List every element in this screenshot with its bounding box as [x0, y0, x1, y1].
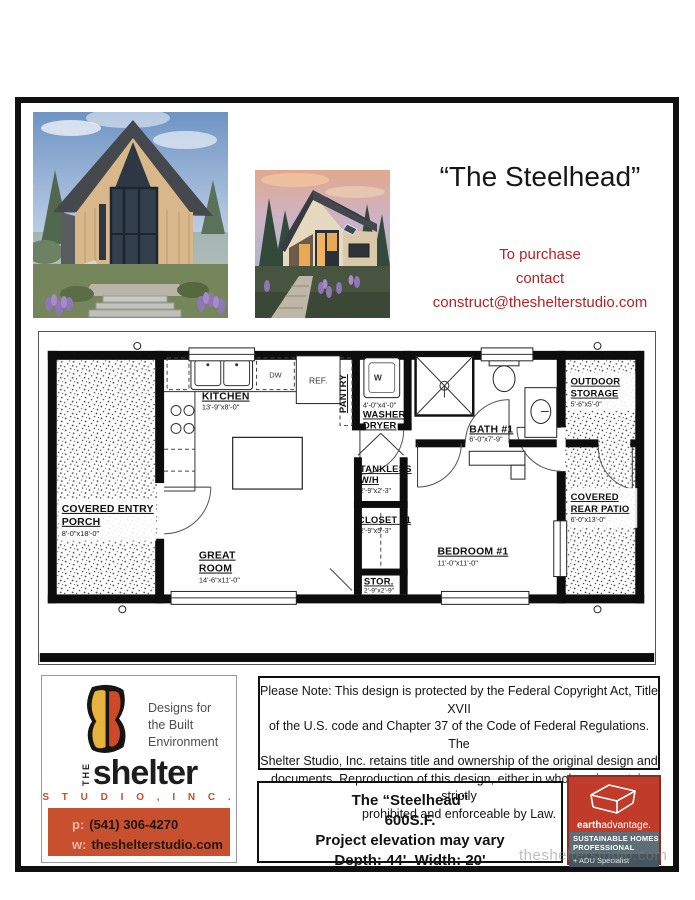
tankless-dims: 2'-9"x2'-3" — [360, 488, 392, 495]
storage-label-1: OUTDOOR — [571, 377, 621, 388]
great-room-label-1: GREAT — [199, 551, 236, 562]
great-room-label-2: ROOM — [199, 564, 232, 575]
closet-dims: 2'-9"x5'-3" — [360, 528, 392, 535]
tagline-line-3: Environment — [148, 734, 218, 751]
project-info-box: The “Steelhead” 600S.F. Project elevatio… — [257, 781, 563, 863]
copyright-line-3: Shelter Studio, Inc. retains title and o… — [260, 753, 658, 771]
web-prefix: w: — [72, 837, 86, 852]
porch-dims: 8'-0"x18'-0" — [62, 529, 100, 538]
copyright-line-1: Please Note: This design is protected by… — [260, 683, 658, 718]
shelter-contact-box: p:(541) 306-4270 w:theshelterstudio.com — [48, 808, 230, 856]
patio-label-2: REAR PATIO — [571, 504, 630, 515]
shelter-logo-mark — [82, 684, 132, 761]
ref-label: REF. — [309, 376, 327, 386]
bath-dims: 6'-0"x7'-9" — [469, 434, 503, 443]
phone-prefix: p: — [72, 817, 84, 832]
purchase-email: construct@theshelterstudio.com — [406, 291, 674, 315]
house-photo-front — [33, 112, 228, 318]
house-rear-render — [255, 170, 390, 318]
dw-label: DW — [269, 371, 281, 380]
project-area: 600S.F. — [259, 811, 561, 831]
patio-dims: 6'-0"x13'-0" — [571, 517, 606, 524]
shelter-studio-card: Designs for the Built Environment THE sh… — [41, 675, 237, 863]
washer-dryer-label-1: WASHER/ — [363, 409, 409, 420]
stor-label: STOR. — [364, 576, 394, 587]
copyright-line-2: of the U.S. code and Chapter 37 of the C… — [260, 718, 658, 753]
floor-plan-drawing: KITCHEN 13'-9"x8'-0" GREAT ROOM 14'-6"x1… — [39, 332, 655, 664]
shelter-phone: p:(541) 306-4270 — [72, 815, 230, 835]
kitchen-label: KITCHEN — [202, 392, 250, 403]
washer-dryer-label-2: DRYER — [363, 420, 397, 431]
watermark-text: theshelterstudio.com — [519, 847, 667, 864]
kitchen-dims: 13'-9"x8'-0" — [202, 403, 240, 412]
bedroom-label: BEDROOM #1 — [437, 547, 508, 558]
porch-label-1: COVERED ENTRY — [62, 504, 154, 515]
tankless-label-1: TANKLESS — [360, 464, 412, 475]
floor-plan: KITCHEN 13'-9"x8'-0" GREAT ROOM 14'-6"x1… — [38, 331, 656, 665]
shelter-website: w:theshelterstudio.com — [72, 835, 230, 855]
earth-advantage-red-panel: earthadvantage. — [569, 777, 659, 832]
page-title: “The Steelhead” — [406, 161, 674, 193]
purchase-line-2: contact — [406, 267, 674, 291]
earth-advantage-cube-icon — [583, 781, 643, 822]
earth-advantage-wordmark: earthadvantage. — [569, 820, 659, 831]
shelter-the: THE — [81, 762, 91, 786]
project-dimensions: Depth: 44' Width: 20' — [259, 851, 561, 871]
web-address: theshelterstudio.com — [91, 837, 222, 852]
tankless-label-2: W/H — [360, 475, 379, 486]
ea-brand-rest: advantage. — [601, 820, 651, 831]
house-front-render — [33, 112, 228, 318]
ea-brand-bold: earth — [577, 820, 601, 831]
project-name: The “Steelhead” — [259, 791, 561, 811]
washer-unit-label: W — [374, 373, 382, 383]
washer-dryer-dims: 4'-0"x4'-0" — [363, 401, 397, 410]
great-room-dims: 14'-6"x11'-0" — [199, 575, 240, 584]
copyright-notice: Please Note: This design is protected by… — [258, 676, 660, 770]
shelter-tagline: Designs for the Built Environment — [148, 700, 218, 751]
pantry-label: PANTRY — [338, 374, 349, 413]
project-elevation-note: Project elevation may vary — [259, 831, 561, 851]
purchase-contact: To purchase contact construct@theshelter… — [406, 243, 674, 315]
tagline-line-1: Designs for — [148, 700, 218, 717]
ea-band-line-1: SUSTAINABLE HOMES — [573, 834, 659, 843]
phone-number: (541) 306-4270 — [89, 817, 178, 832]
house-photo-rear — [255, 170, 390, 318]
shelter-wordmark: THE shelter — [42, 754, 236, 793]
flyer-page: “The Steelhead” To purchase contact cons… — [0, 0, 695, 900]
patio-label-1: COVERED — [571, 492, 619, 503]
storage-dims: 5'-6"x5'-0" — [571, 402, 603, 409]
tagline-line-2: the Built — [148, 717, 218, 734]
bedroom-dims: 11'-0"x11'-0" — [437, 559, 478, 568]
storage-label-2: STORAGE — [571, 389, 619, 400]
shelter-name: shelter — [93, 754, 198, 793]
porch-area — [54, 358, 157, 599]
closet-label: CLOSET #1 — [358, 515, 411, 526]
porch-label-2: PORCH — [62, 517, 101, 528]
page-frame: “The Steelhead” To purchase contact cons… — [15, 97, 679, 872]
shelter-studio-inc: S T U D I O , I N C . — [42, 792, 236, 803]
stor-dims: 2'-9"x2'-9" — [364, 587, 395, 594]
purchase-line-1: To purchase — [406, 243, 674, 267]
